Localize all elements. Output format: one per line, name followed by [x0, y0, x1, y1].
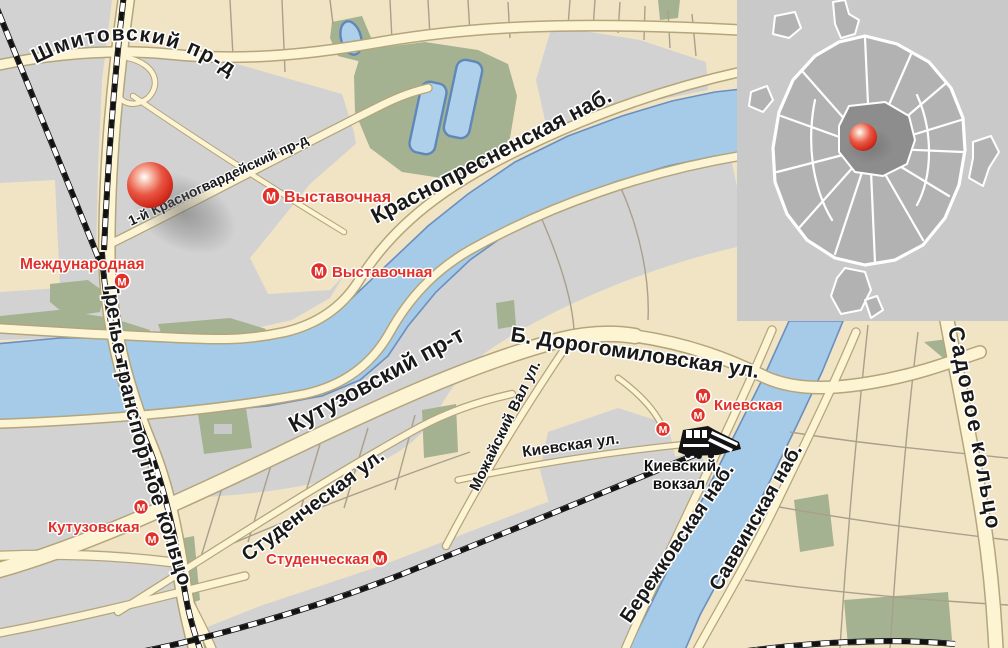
station-label-line2: вокзал — [653, 476, 706, 493]
metro-icon-kutuzovskaya-1: М — [134, 500, 149, 515]
svg-text:М: М — [375, 554, 384, 566]
metro-icon-kievskaya-1: М — [695, 388, 711, 404]
city-map[interactable]: Шмитовский пр-д 1-й Красногвардейский пр… — [0, 0, 1008, 648]
svg-text:М: М — [148, 534, 157, 546]
metro-icon-kievskaya-3: М — [656, 422, 671, 437]
station-label-line1: Киевский — [644, 458, 716, 475]
svg-text:М: М — [698, 392, 707, 404]
inset-minimap — [737, 0, 1008, 321]
metro-label-kievskaya: Киевская — [714, 397, 783, 414]
svg-text:М: М — [694, 410, 703, 422]
metro-label-studencheskaya: Студенческая — [266, 551, 369, 568]
metro-icon-vystavochnaya-1: М — [262, 187, 280, 205]
metro-icon-kutuzovskaya-2: М — [145, 532, 160, 547]
map-screenshot: Шмитовский пр-д 1-й Красногвардейский пр… — [0, 0, 1008, 648]
metro-label-vystavochnaya-1: Выставочная — [284, 189, 391, 206]
svg-text:М: М — [266, 190, 276, 204]
metro-icon-mezhdunarodnaya: М — [114, 273, 130, 289]
svg-text:М: М — [314, 267, 324, 279]
svg-text:М: М — [659, 424, 668, 436]
metro-icon-kievskaya-2: М — [691, 408, 706, 423]
metro-icon-studencheskaya: М — [372, 550, 388, 566]
metro-label-mezhdunarodnaya: Международная — [20, 256, 145, 273]
metro-label-kutuzovskaya: Кутузовская — [48, 519, 140, 536]
marker-ball — [127, 162, 173, 208]
svg-text:М: М — [117, 277, 126, 289]
inset-marker-ball — [849, 123, 877, 151]
metro-label-vystavochnaya-2: Выставочная — [332, 264, 432, 281]
metro-icon-vystavochnaya-2: М — [311, 263, 328, 280]
svg-text:М: М — [137, 502, 146, 514]
